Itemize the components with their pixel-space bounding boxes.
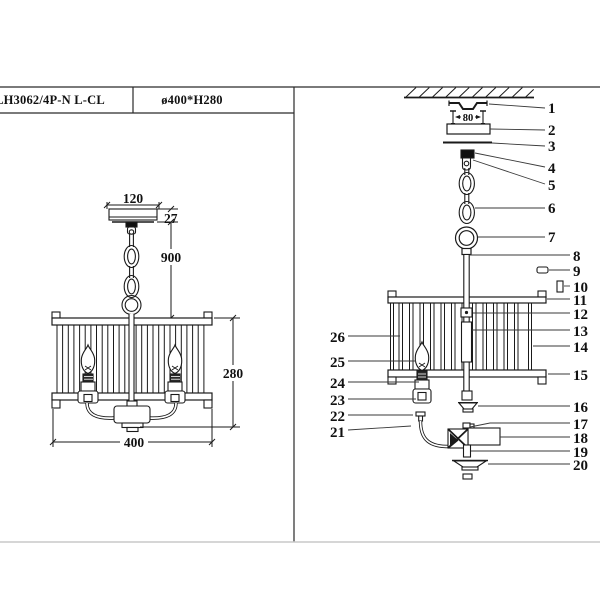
part-label-1: 1 xyxy=(548,101,556,117)
part-labels-right: 1 2 3 4 5 6 7 8 9 10 11 12 13 14 15 16 1… xyxy=(548,101,589,474)
size-spec: ø400*H280 xyxy=(161,93,223,107)
spec-sheet: LH3062/4P-N L-CL ø400*H280 120 27 xyxy=(0,0,600,600)
center-rod-left xyxy=(129,314,134,406)
part-label-2: 2 xyxy=(548,123,556,139)
sheet-frame xyxy=(0,87,600,542)
part-labels-left: 26 25 24 23 22 21 xyxy=(330,330,346,441)
part-label-15: 15 xyxy=(573,368,588,384)
ceiling-hatch xyxy=(404,88,534,98)
leader-lines xyxy=(348,104,570,464)
lamp-technical-drawing: LH3062/4P-N L-CL ø400*H280 120 27 xyxy=(0,0,600,600)
part-label-16: 16 xyxy=(573,400,589,416)
part-label-5: 5 xyxy=(548,178,556,194)
part-label-20: 20 xyxy=(573,458,588,474)
canopy-exploded xyxy=(447,124,490,134)
dim-drop-length: 900 xyxy=(161,250,182,265)
fastener-pin xyxy=(537,267,548,273)
part-label-12: 12 xyxy=(573,307,588,323)
part-label-6: 6 xyxy=(548,201,556,217)
part-label-4: 4 xyxy=(548,161,556,177)
arm-exploded xyxy=(421,421,450,447)
part-label-7: 7 xyxy=(548,230,556,246)
model-number: LH3062/4P-N L-CL xyxy=(0,93,105,107)
part-label-14: 14 xyxy=(573,340,589,356)
dim-900-lines xyxy=(168,222,174,321)
bulb-left-2 xyxy=(165,345,185,403)
part-label-25: 25 xyxy=(330,355,345,371)
hanger-connector xyxy=(461,150,474,170)
part-label-8: 8 xyxy=(573,249,581,265)
exploded-view: 80 xyxy=(388,88,563,480)
socket-assembly xyxy=(448,423,500,457)
bottom-plate xyxy=(452,461,488,480)
part-label-21: 21 xyxy=(330,425,345,441)
part-label-24: 24 xyxy=(330,376,346,392)
finial xyxy=(458,403,478,413)
part-label-3: 3 xyxy=(548,139,556,155)
dim-bracket-pitch: 80 xyxy=(463,113,474,124)
chain-left xyxy=(122,222,141,315)
fastener-sleeve xyxy=(557,281,563,292)
part-label-23: 23 xyxy=(330,393,345,409)
dim-shade-diameter: 400 xyxy=(124,435,145,450)
dimension-view: 120 27 900 xyxy=(50,191,243,450)
part-label-22: 22 xyxy=(330,409,345,425)
canopy xyxy=(109,209,157,222)
bulb-left-1 xyxy=(78,345,98,403)
center-rod-exploded xyxy=(461,255,472,400)
chain-exploded xyxy=(459,168,474,224)
part-label-13: 13 xyxy=(573,324,588,340)
dim-canopy-width: 120 xyxy=(123,191,144,206)
hanging-ring xyxy=(456,227,478,255)
part-label-26: 26 xyxy=(330,330,346,346)
part-label-9: 9 xyxy=(573,264,581,280)
bulb-exploded xyxy=(413,342,431,421)
dim-shade-height: 280 xyxy=(223,366,244,381)
